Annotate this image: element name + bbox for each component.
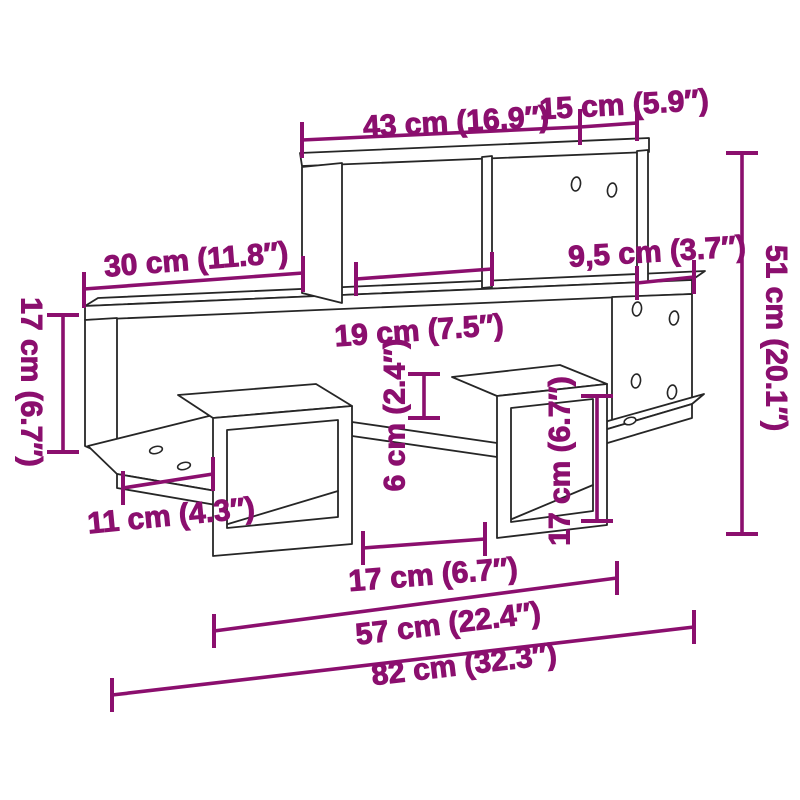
screw-hole-icon — [607, 182, 618, 197]
dim-label-51cm: 51 cm (20.1″) — [760, 245, 793, 431]
middle-connector-shelf — [352, 422, 497, 457]
dim-label-43cm: 43 cm (16.9″) — [362, 100, 550, 143]
left-side-panel — [85, 318, 117, 460]
dim-17cm-bottom-gap-width: 17 cm (6.7″) — [347, 522, 519, 598]
dim-label-17cm-right-cube: 17 cm (6.7″) — [544, 376, 577, 545]
top-unit-left-panel — [302, 163, 342, 303]
dim-51cm-total-height: 51 cm (20.1″) — [726, 153, 793, 534]
dim-label-19cm: 19 cm (7.5″) — [333, 309, 504, 354]
dim-label-15cm: 15 cm (5.9″) — [539, 84, 710, 126]
dim-15cm-top-right-width: 15 cm (5.9″) — [539, 84, 710, 141]
product-dimension-diagram: 43 cm (16.9″) 15 cm (5.9″) 30 cm (11.8″)… — [0, 0, 800, 800]
dim-label-17cm-left: 17 cm (6.7″) — [15, 297, 48, 466]
top-board — [300, 138, 649, 166]
wall-shelf-diagram: 43 cm (16.9″) 15 cm (5.9″) 30 cm (11.8″)… — [0, 0, 800, 800]
screw-hole-icon — [571, 176, 582, 191]
dim-6cm-middle-gap-height: 6 cm (2.4″) — [379, 339, 441, 492]
dim-label-9-5cm: 9,5 cm (3.7″) — [567, 230, 746, 274]
dim-label-17cm-bottom: 17 cm (6.7″) — [347, 552, 519, 598]
dim-label-6cm: 6 cm (2.4″) — [379, 339, 412, 492]
dim-17cm-left-section-height: 17 cm (6.7″) — [15, 297, 80, 466]
